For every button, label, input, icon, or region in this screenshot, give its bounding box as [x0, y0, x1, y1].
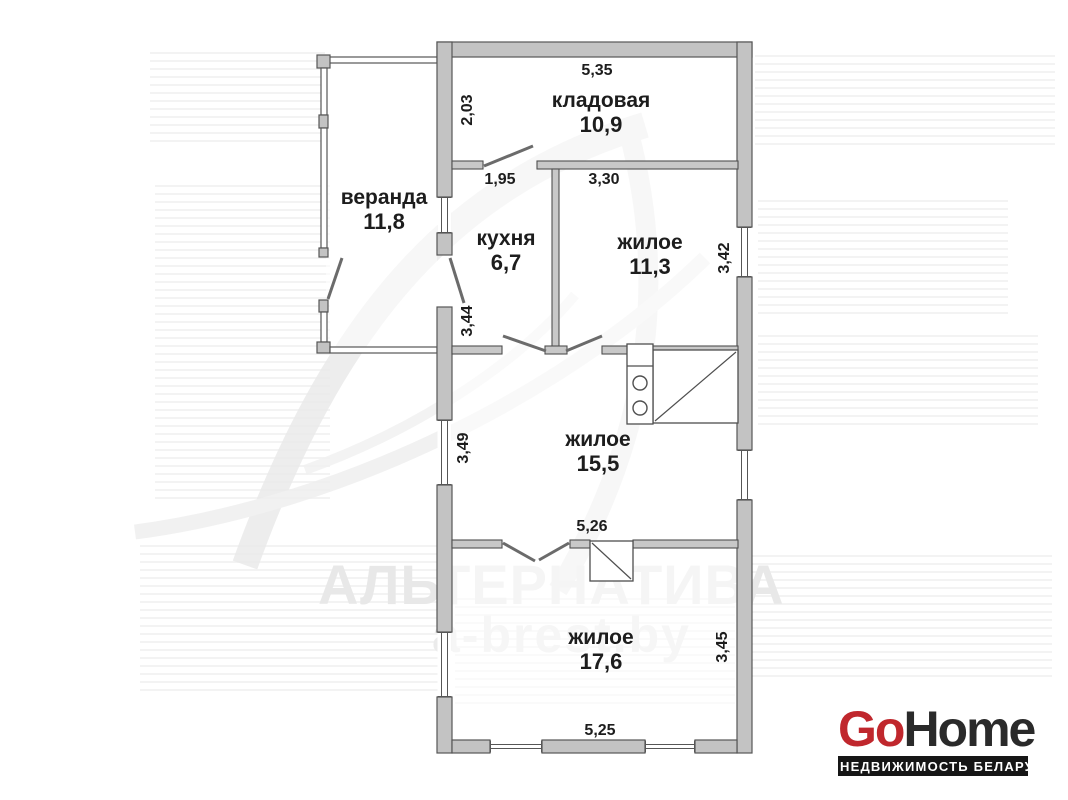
veranda-bottom-wall [330, 347, 437, 353]
wall-left-segment [437, 42, 452, 197]
partition-zhiloe2-top [545, 346, 567, 354]
veranda-post [319, 115, 328, 128]
dim-zhiloe1-width: 3,30 [588, 171, 619, 189]
window [738, 227, 752, 277]
dim-kladovaya-depth: 2,03 [459, 94, 477, 125]
veranda-top-wall [320, 57, 437, 63]
window [645, 741, 695, 753]
wall-right-segment [737, 42, 752, 227]
partition-zhiloe2-top [452, 346, 502, 354]
stove-unit-zhiloe2 [627, 344, 738, 424]
veranda-post [319, 248, 328, 257]
room-name: кухня [476, 227, 535, 251]
room-label-zhiloe-3: жилое 17,6 [568, 626, 633, 674]
wall-top [437, 42, 752, 57]
room-area: 6,7 [476, 251, 535, 275]
partition-zhiloe3-top [633, 540, 738, 548]
window [490, 741, 542, 753]
room-label-zhiloe-1: жилое 11,3 [617, 231, 682, 279]
dim-kukhnya-width: 1,95 [484, 171, 515, 189]
gohome-logo-go: Go [838, 701, 903, 757]
veranda-window [321, 68, 327, 115]
veranda-corner-post [317, 342, 330, 353]
room-area: 11,8 [341, 210, 428, 234]
room-label-zhiloe-2: жилое 15,5 [565, 428, 630, 476]
wall-right-segment [737, 500, 752, 753]
window [738, 450, 752, 500]
wall-bottom-segment [452, 740, 490, 753]
partition-kladovaya [452, 161, 483, 169]
window [438, 632, 452, 697]
wall-right-segment [737, 277, 752, 450]
veranda-post [319, 300, 328, 312]
gohome-logo-home: Home [903, 701, 1034, 757]
partition-kladovaya [537, 161, 738, 169]
wall-bottom-segment [542, 740, 645, 753]
veranda-corner-post [317, 55, 330, 68]
wall-left-segment [437, 485, 452, 632]
floorplan-image: АЛЬТЕРНАТИВА a-brest.by [0, 0, 1068, 800]
wall-bottom-segment [695, 740, 737, 753]
veranda-window [321, 312, 327, 342]
room-name: веранда [341, 186, 428, 210]
room-label-kukhnya: кухня 6,7 [476, 227, 535, 275]
room-name: кладовая [552, 89, 651, 113]
room-area: 10,9 [552, 113, 651, 137]
partition-zhiloe3-top [452, 540, 502, 548]
partition-kukhnya-zhiloe1 [552, 169, 559, 353]
veranda-window [321, 128, 327, 248]
room-area: 15,5 [565, 452, 630, 476]
gohome-logo: GoHome НЕДВИЖИМОСТЬ БЕЛАРУСИ [838, 703, 1028, 776]
window [438, 197, 452, 233]
dim-zhiloe3-width: 5,25 [584, 722, 615, 740]
wall-left-segment [437, 233, 452, 255]
room-name: жилое [568, 626, 633, 650]
window [438, 420, 452, 485]
dim-kladovaya-width: 5,35 [581, 62, 612, 80]
room-name: жилое [565, 428, 630, 452]
dim-zhiloe3-depth: 3,45 [714, 631, 732, 662]
wall-left-segment [437, 697, 452, 753]
dim-kukhnya-depth: 3,44 [459, 305, 477, 336]
partition-zhiloe3-top [570, 540, 590, 548]
room-label-kladovaya: кладовая 10,9 [552, 89, 651, 137]
wall-left-segment [437, 307, 452, 420]
dim-zhiloe2-width: 5,26 [576, 518, 607, 536]
room-label-veranda: веранда 11,8 [341, 186, 428, 234]
gohome-logo-brand: GoHome [838, 703, 1028, 755]
dim-zhiloe1-depth: 3,42 [716, 242, 734, 273]
stove-zhiloe3 [590, 541, 633, 581]
floor-plan-drawing [0, 0, 1068, 800]
room-area: 17,6 [568, 650, 633, 674]
room-name: жилое [617, 231, 682, 255]
room-area: 11,3 [617, 255, 682, 279]
gohome-logo-tagline: НЕДВИЖИМОСТЬ БЕЛАРУСИ [838, 756, 1028, 776]
dim-zhiloe2-depth: 3,49 [455, 432, 473, 463]
